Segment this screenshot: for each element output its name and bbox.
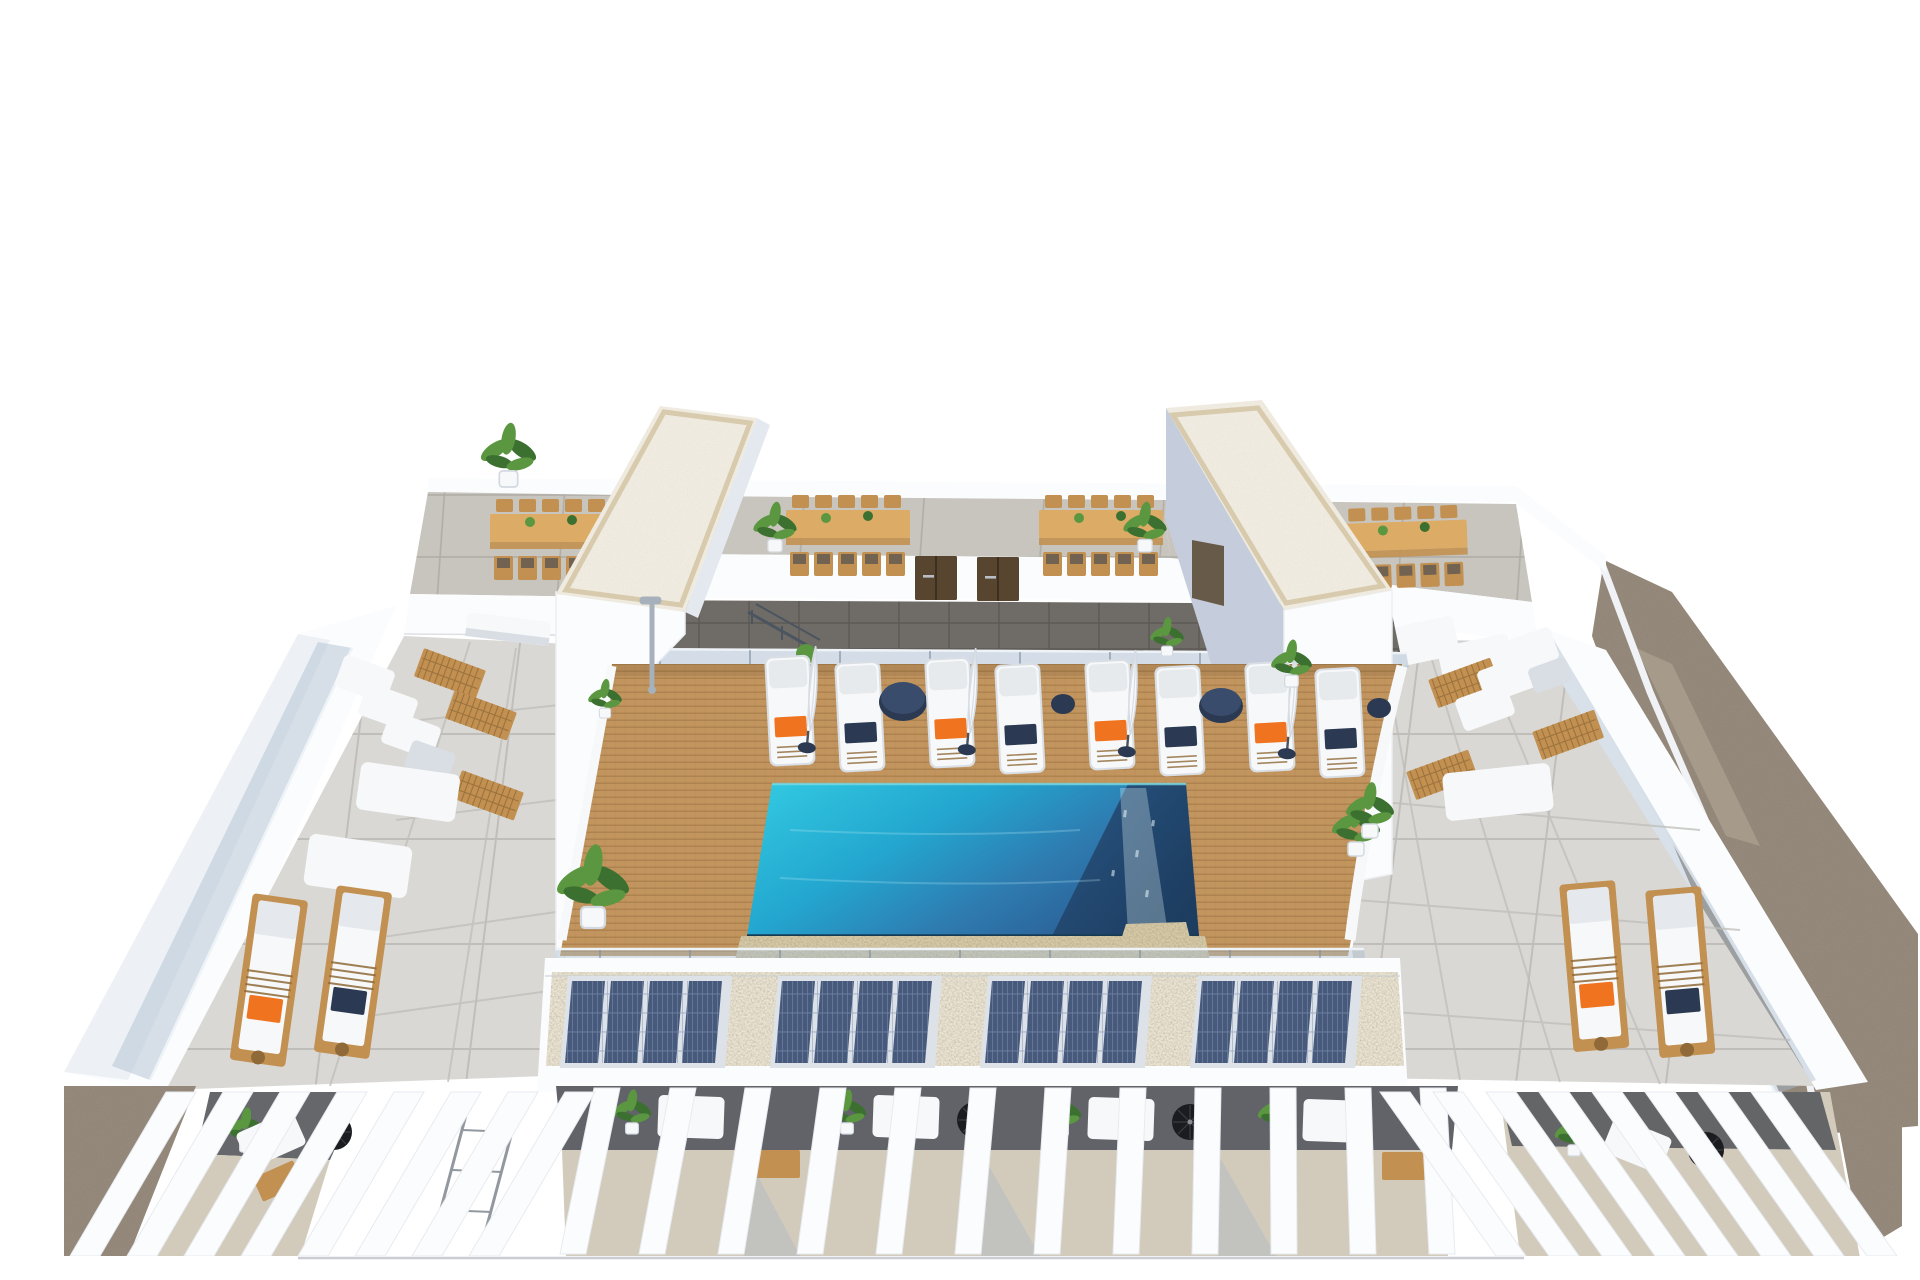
solar-array (560, 976, 732, 1068)
render-canvas (0, 0, 1920, 1280)
pool-lounger (994, 663, 1046, 775)
solar-array (980, 976, 1152, 1068)
pool-lounger (834, 661, 886, 773)
side-table (1199, 688, 1243, 723)
solar-strip (537, 958, 1408, 1092)
towel (844, 722, 877, 744)
towel (1254, 722, 1287, 744)
swimming-pool (735, 784, 1210, 962)
towel (1579, 982, 1615, 1009)
side-table (1051, 694, 1075, 714)
towel (1094, 720, 1127, 742)
solar-array (770, 976, 942, 1068)
towel (330, 987, 367, 1015)
pool-lounger (1154, 665, 1206, 777)
towel (1004, 724, 1037, 746)
dining-set (786, 495, 910, 576)
towel (246, 995, 283, 1023)
towel (1324, 728, 1357, 750)
side-table (879, 682, 927, 721)
service-door (977, 557, 1019, 601)
pool-lounger (1314, 667, 1366, 779)
building-fascia (0, 1256, 1920, 1280)
towel (1665, 988, 1701, 1015)
tower-door (1192, 540, 1224, 606)
towel (934, 718, 967, 740)
solar-array (1190, 976, 1362, 1068)
side-table (1367, 698, 1391, 718)
service-door (915, 556, 957, 600)
towel (1164, 726, 1197, 748)
rooftop-render (0, 0, 1920, 1280)
towel (774, 716, 807, 738)
